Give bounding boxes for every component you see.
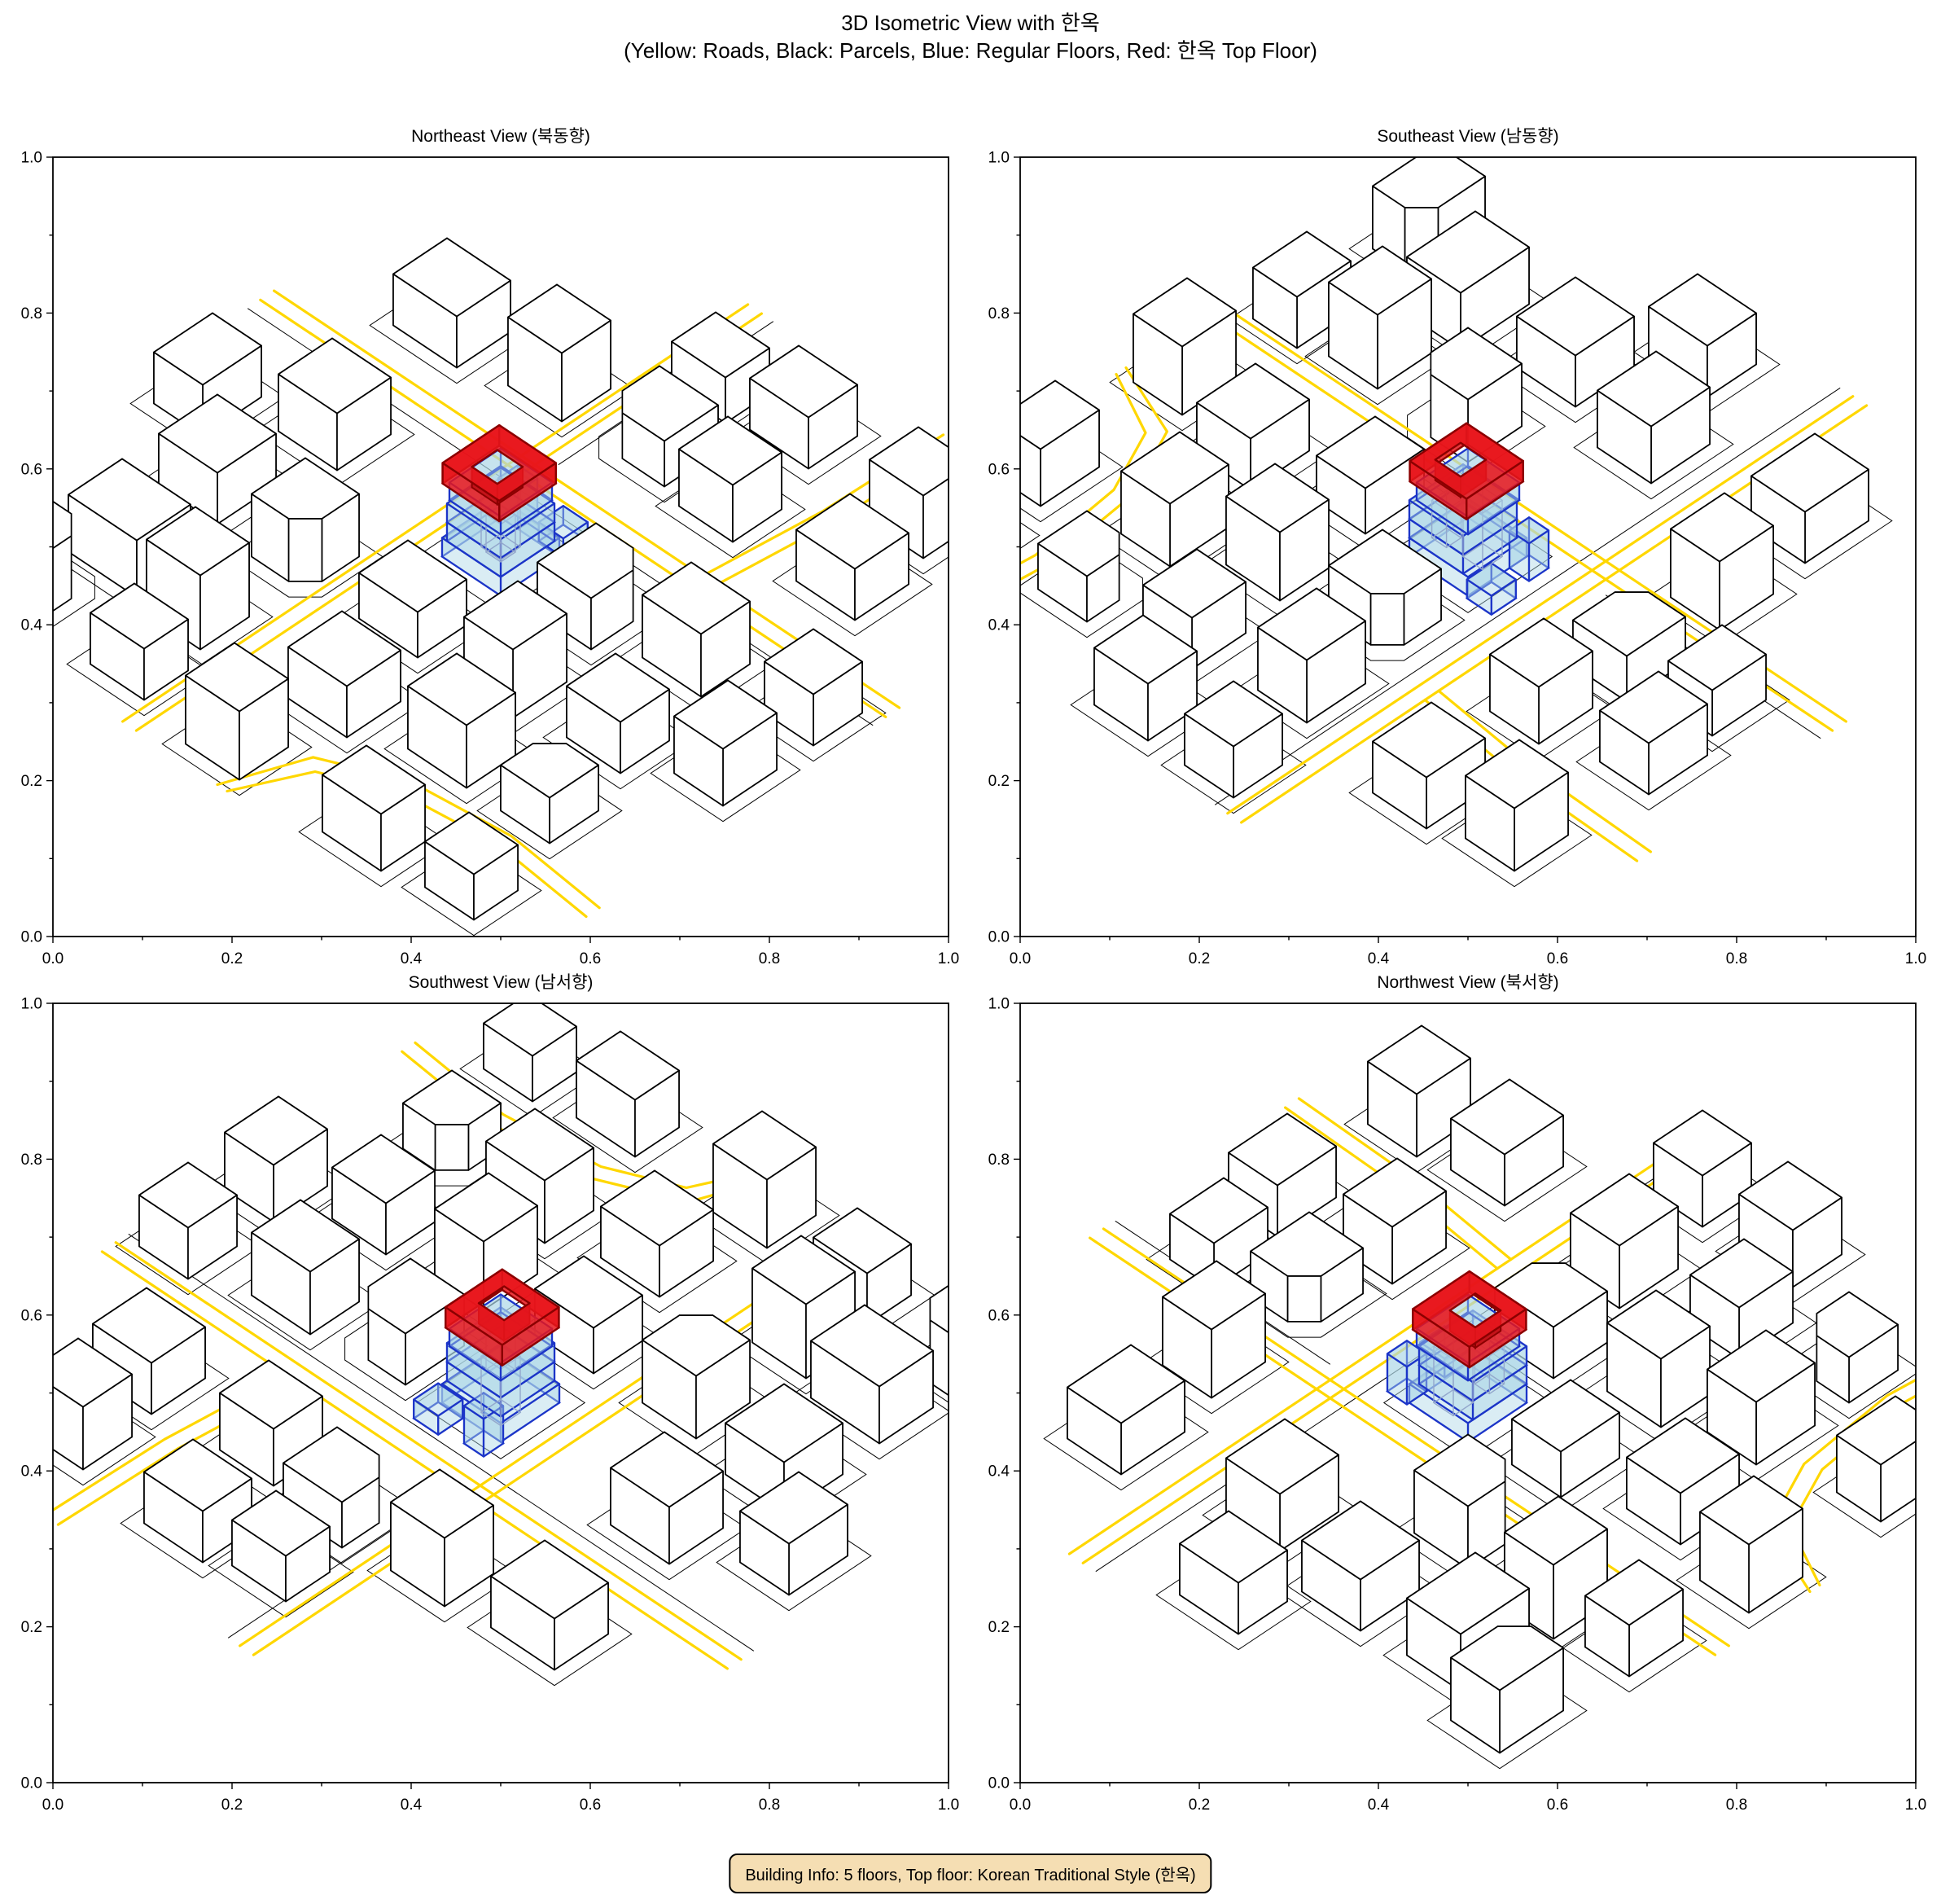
- svg-text:0.8: 0.8: [759, 950, 780, 967]
- figure-subtitle: (Yellow: Roads, Black: Parcels, Blue: Re…: [0, 34, 1941, 64]
- svg-text:0.0: 0.0: [988, 929, 1010, 946]
- svg-text:0.2: 0.2: [21, 773, 42, 790]
- isometric-view-southeast: 0.00.20.40.60.81.00.00.20.40.60.81.0: [967, 149, 1938, 996]
- svg-text:1.0: 1.0: [21, 150, 42, 167]
- svg-text:0.8: 0.8: [21, 305, 42, 322]
- svg-text:0.4: 0.4: [401, 1797, 423, 1814]
- subplot-southeast: Southeast View (남동향) 0.00.20.40.60.81.00…: [967, 149, 1938, 996]
- subplot-title-southeast: Southeast View (남동향): [1020, 123, 1916, 147]
- svg-text:0.2: 0.2: [1189, 950, 1210, 967]
- svg-text:0.2: 0.2: [21, 1619, 42, 1636]
- svg-text:0.6: 0.6: [1547, 950, 1568, 967]
- svg-text:0.0: 0.0: [42, 950, 64, 967]
- svg-text:0.0: 0.0: [21, 929, 42, 946]
- svg-text:0.6: 0.6: [21, 1307, 42, 1324]
- svg-text:0.0: 0.0: [21, 1775, 42, 1792]
- svg-text:0.6: 0.6: [580, 950, 601, 967]
- svg-text:0.4: 0.4: [21, 617, 43, 634]
- figure-canvas: 3D Isometric View with 한옥 (Yellow: Roads…: [0, 0, 1941, 1904]
- svg-text:0.4: 0.4: [21, 1463, 43, 1481]
- svg-text:0.8: 0.8: [1726, 1797, 1747, 1814]
- svg-text:0.2: 0.2: [221, 950, 243, 967]
- svg-text:1.0: 1.0: [1905, 1797, 1926, 1814]
- svg-text:0.8: 0.8: [759, 1797, 780, 1814]
- svg-text:0.0: 0.0: [42, 1797, 64, 1814]
- svg-text:0.4: 0.4: [988, 617, 1010, 634]
- svg-text:0.8: 0.8: [988, 1152, 1010, 1169]
- svg-text:0.6: 0.6: [988, 1307, 1010, 1324]
- svg-text:1.0: 1.0: [1905, 950, 1926, 967]
- subplot-title-northeast: Northeast View (북동향): [53, 123, 949, 147]
- svg-text:0.6: 0.6: [21, 461, 42, 478]
- svg-text:0.2: 0.2: [988, 1619, 1010, 1636]
- svg-text:0.6: 0.6: [1547, 1797, 1568, 1814]
- svg-text:1.0: 1.0: [938, 950, 959, 967]
- svg-text:0.2: 0.2: [988, 773, 1010, 790]
- svg-text:0.8: 0.8: [21, 1152, 42, 1169]
- subplot-title-northwest: Northwest View (북서향): [1020, 969, 1916, 994]
- svg-text:0.8: 0.8: [1726, 950, 1747, 967]
- svg-text:0.4: 0.4: [1368, 1797, 1390, 1814]
- svg-text:0.2: 0.2: [1189, 1797, 1210, 1814]
- figure-title: 3D Isometric View with 한옥: [0, 7, 1941, 37]
- svg-text:1.0: 1.0: [938, 1797, 959, 1814]
- svg-text:0.4: 0.4: [1368, 950, 1390, 967]
- svg-text:1.0: 1.0: [21, 996, 42, 1013]
- isometric-view-northeast: 0.00.20.40.60.81.00.00.20.40.60.81.0: [0, 149, 970, 996]
- building-info-badge: Building Info: 5 floors, Top floor: Kore…: [729, 1854, 1211, 1893]
- svg-text:0.0: 0.0: [988, 1775, 1010, 1792]
- svg-text:1.0: 1.0: [988, 996, 1010, 1013]
- subplot-northeast: Northeast View (북동향) 0.00.20.40.60.81.00…: [0, 149, 970, 996]
- svg-text:0.2: 0.2: [221, 1797, 243, 1814]
- isometric-view-southwest: 0.00.20.40.60.81.00.00.20.40.60.81.0: [0, 995, 970, 1842]
- svg-text:0.4: 0.4: [988, 1463, 1010, 1481]
- isometric-view-northwest: 0.00.20.40.60.81.00.00.20.40.60.81.0: [967, 995, 1938, 1842]
- svg-text:0.0: 0.0: [1010, 1797, 1031, 1814]
- svg-text:0.0: 0.0: [1010, 950, 1031, 967]
- svg-text:1.0: 1.0: [988, 150, 1010, 167]
- subplot-southwest: Southwest View (남서향) 0.00.20.40.60.81.00…: [0, 995, 970, 1842]
- svg-text:0.4: 0.4: [401, 950, 423, 967]
- svg-text:0.8: 0.8: [988, 305, 1010, 322]
- subplot-northwest: Northwest View (북서향) 0.00.20.40.60.81.00…: [967, 995, 1938, 1842]
- svg-text:0.6: 0.6: [580, 1797, 601, 1814]
- subplot-title-southwest: Southwest View (남서향): [53, 969, 949, 994]
- svg-text:0.6: 0.6: [988, 461, 1010, 478]
